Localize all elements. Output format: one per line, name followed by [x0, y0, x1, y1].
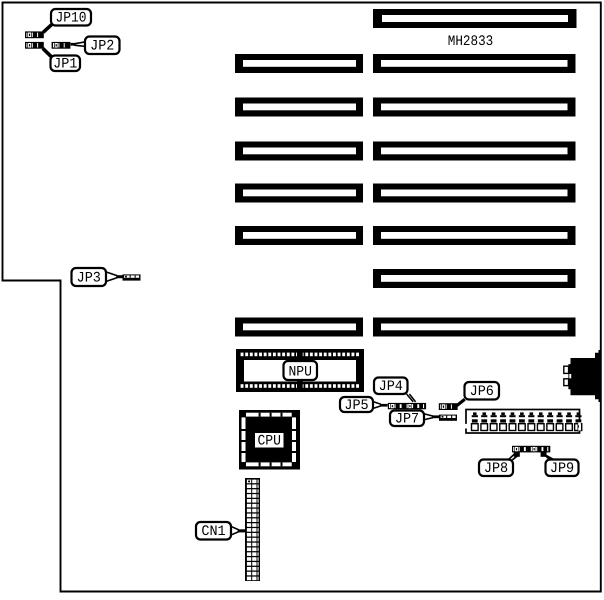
svg-text:MH2833: MH2833: [448, 34, 494, 50]
svg-text:NPU: NPU: [288, 364, 312, 380]
svg-text:CN1: CN1: [201, 524, 225, 540]
svg-text:JP1: JP1: [53, 57, 77, 73]
svg-text:JP3: JP3: [77, 270, 101, 286]
svg-text:JP7: JP7: [395, 412, 419, 428]
svg-text:JP2: JP2: [90, 39, 114, 55]
svg-text:JP9: JP9: [550, 461, 574, 477]
svg-text:JP6: JP6: [470, 384, 494, 400]
svg-text:CPU: CPU: [257, 434, 281, 450]
svg-text:JP5: JP5: [344, 398, 368, 414]
svg-text:JP8: JP8: [484, 461, 508, 477]
svg-text:JP10: JP10: [56, 11, 87, 27]
svg-text:JP4: JP4: [379, 379, 403, 395]
